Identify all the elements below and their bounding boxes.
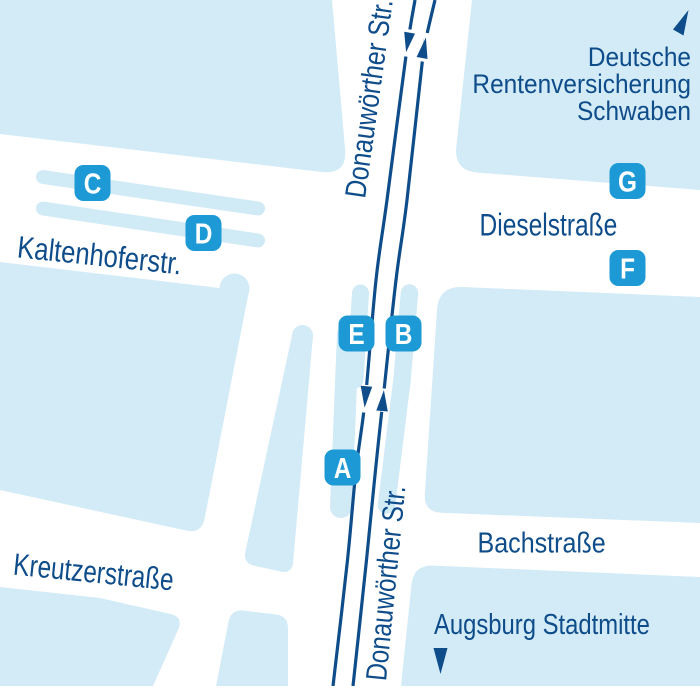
svg-text:Dieselstraße: Dieselstraße xyxy=(480,207,618,243)
svg-text:Deutsche: Deutsche xyxy=(588,43,691,72)
svg-text:Bachstraße: Bachstraße xyxy=(478,527,606,559)
svg-text:A: A xyxy=(334,452,352,484)
svg-text:Schwaben: Schwaben xyxy=(577,97,691,126)
svg-text:C: C xyxy=(84,167,102,199)
svg-text:F: F xyxy=(620,252,635,284)
svg-text:Rentenversicherung: Rentenversicherung xyxy=(472,70,691,99)
svg-text:Augsburg Stadtmitte: Augsburg Stadtmitte xyxy=(434,608,650,641)
svg-text:D: D xyxy=(195,217,213,249)
svg-text:E: E xyxy=(348,318,364,350)
svg-text:B: B xyxy=(395,318,413,350)
svg-text:G: G xyxy=(618,165,637,197)
